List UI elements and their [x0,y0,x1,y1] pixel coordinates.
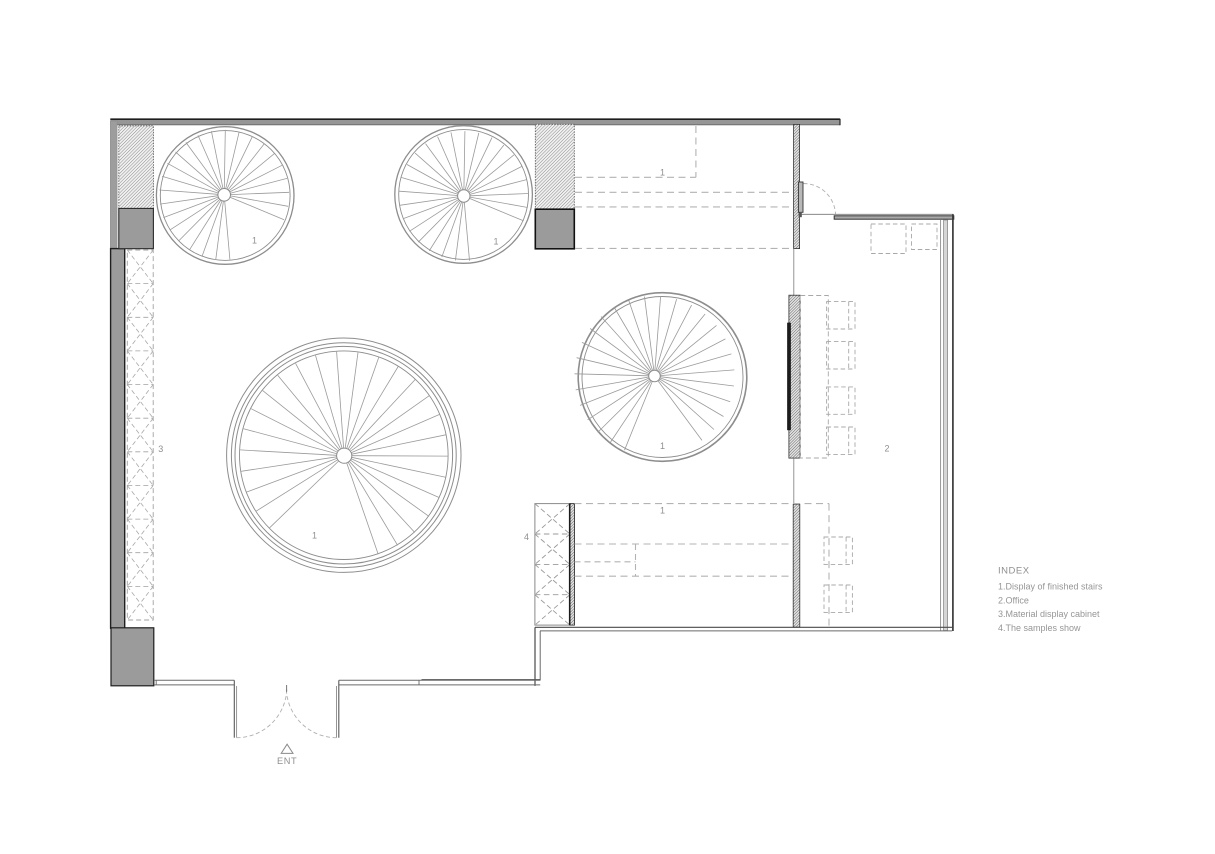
svg-text:1: 1 [312,531,317,541]
svg-text:ENT: ENT [277,756,297,766]
svg-text:2.Office: 2.Office [998,595,1029,605]
svg-text:3.Material display cabinet: 3.Material display cabinet [998,609,1100,619]
svg-text:1.Display of finished stairs: 1.Display of finished stairs [998,582,1103,592]
svg-text:1: 1 [660,168,665,178]
svg-text:4.The samples show: 4.The samples show [998,623,1081,633]
svg-text:1: 1 [660,506,665,516]
svg-text:3: 3 [158,444,163,454]
svg-text:1: 1 [252,236,257,246]
svg-text:2: 2 [884,444,889,454]
svg-text:1: 1 [493,237,498,247]
svg-text:INDEX: INDEX [998,566,1030,577]
svg-text:4: 4 [524,532,529,542]
svg-text:1: 1 [660,441,665,451]
